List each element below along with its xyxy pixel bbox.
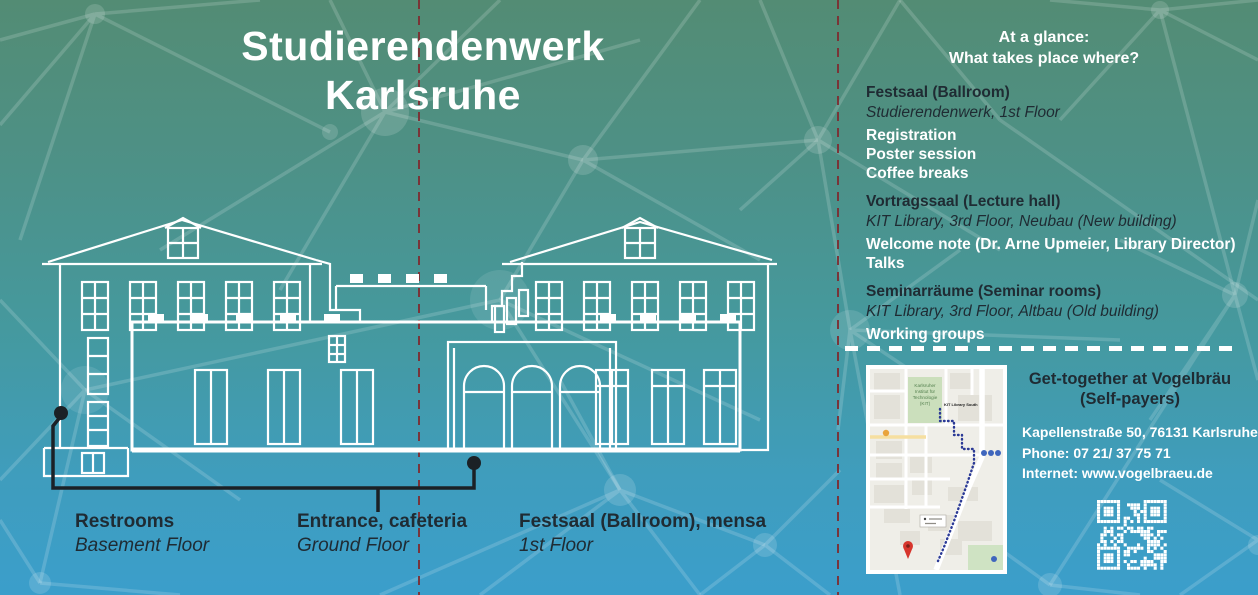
qr-code [1097, 500, 1167, 570]
section-vortragssaal: Vortragssaal (Lecture hall) KIT Library,… [866, 192, 1252, 273]
address: Kapellenstraße 50, 76131 Karlsruhe [1022, 422, 1258, 443]
floor-label-entrance: Entrance, cafeteria Ground Floor [297, 509, 467, 558]
floor-label-name: Festsaal (Ballroom), mensa [519, 509, 766, 534]
map-kit-label: Karlsruher [914, 383, 936, 388]
glance-line2: What takes place where? [949, 50, 1139, 67]
section-location: KIT Library, 3rd Floor, Altbau (Old buil… [866, 302, 1252, 322]
title-line1: Studierendenwerk [241, 23, 604, 69]
building-illustration [40, 210, 780, 520]
right-wing [492, 218, 777, 450]
floor-label-name: Restrooms [75, 509, 209, 534]
section-location: Studierendenwerk, 1st Floor [866, 103, 1252, 123]
floor-label-floor: Ground Floor [297, 534, 467, 558]
section-location: KIT Library, 3rd Floor, Neubau (New buil… [866, 212, 1252, 232]
map-library-label: KIT Library South [944, 402, 978, 407]
svg-text:Technologie: Technologie [913, 395, 938, 400]
entrance-callout-dot [467, 456, 481, 470]
floor-label-floor: Basement Floor [75, 534, 209, 558]
walk-time-label [920, 515, 946, 527]
floor-label-restrooms: Restrooms Basement Floor [75, 509, 209, 558]
glance-line1: At a glance: [999, 29, 1090, 46]
section-title: Seminarräume (Seminar rooms) [866, 282, 1252, 302]
left-wing [42, 218, 360, 476]
floor-label-floor: 1st Floor [519, 534, 766, 558]
section-item: Registration [866, 126, 1252, 145]
front-building [132, 314, 740, 450]
section-title: Festsaal (Ballroom) [866, 83, 1252, 103]
svg-text:Institut für: Institut für [915, 389, 936, 394]
section-item: Welcome note (Dr. Arne Upmeier, Library … [866, 235, 1252, 254]
internet: Internet: www.vogelbraeu.de [1022, 463, 1258, 484]
poi-icon [883, 430, 889, 436]
floor-label-festsaal: Festsaal (Ballroom), mensa 1st Floor [519, 509, 766, 558]
section-item: Coffee breaks [866, 164, 1252, 183]
section-item: Talks [866, 254, 1252, 273]
flyer-page: Studierendenwerk Karlsruhe [0, 0, 1258, 595]
at-a-glance-heading: At a glance: What takes place where? [846, 27, 1242, 69]
section-item: Poster session [866, 145, 1252, 164]
dashed-separator [845, 346, 1241, 351]
location-map: Karlsruher Institut für Technologie (KIT… [866, 365, 1007, 574]
title-line2: Karlsruhe [325, 72, 521, 118]
venue-sections: Festsaal (Ballroom) Studierendenwerk, 1s… [866, 83, 1252, 353]
get-together-contact: Kapellenstraße 50, 76131 Karlsruhe Phone… [1022, 422, 1258, 484]
svg-text:(KIT): (KIT) [920, 401, 931, 406]
map-green-area [968, 545, 1003, 570]
section-item: Working groups [866, 325, 1252, 344]
center-block [329, 274, 486, 362]
section-title: Vortragssaal (Lecture hall) [866, 192, 1252, 212]
get-together-heading: Get-together at Vogelbräu (Self-payers) [1012, 369, 1248, 409]
phone: Phone: 07 21/ 37 75 71 [1022, 443, 1258, 464]
page-title: Studierendenwerk Karlsruhe [8, 22, 838, 120]
section-festsaal: Festsaal (Ballroom) Studierendenwerk, 1s… [866, 83, 1252, 183]
floor-label-name: Entrance, cafeteria [297, 509, 467, 534]
section-seminarraeume: Seminarräume (Seminar rooms) KIT Library… [866, 282, 1252, 344]
arched-entrance [448, 342, 616, 450]
